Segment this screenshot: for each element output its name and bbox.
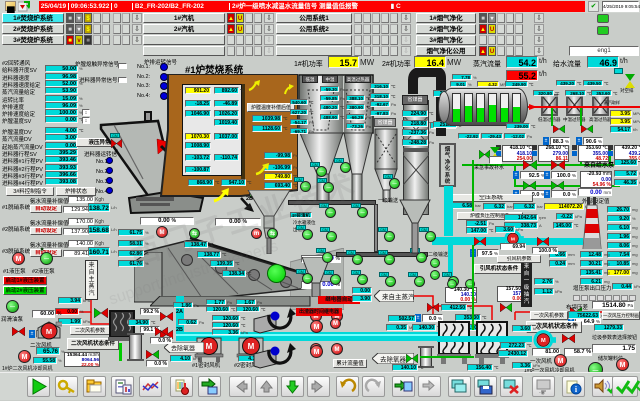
svg-text:M: M (541, 338, 546, 344)
svg-text:M: M (511, 236, 515, 242)
svg-text:-◉: -◉ (539, 390, 546, 396)
svg-text:去除氧器: 去除氧器 (171, 345, 195, 353)
svg-text:去除氧器: 去除氧器 (380, 355, 407, 364)
svg-text:M: M (46, 327, 52, 336)
svg-text:M: M (206, 342, 213, 351)
